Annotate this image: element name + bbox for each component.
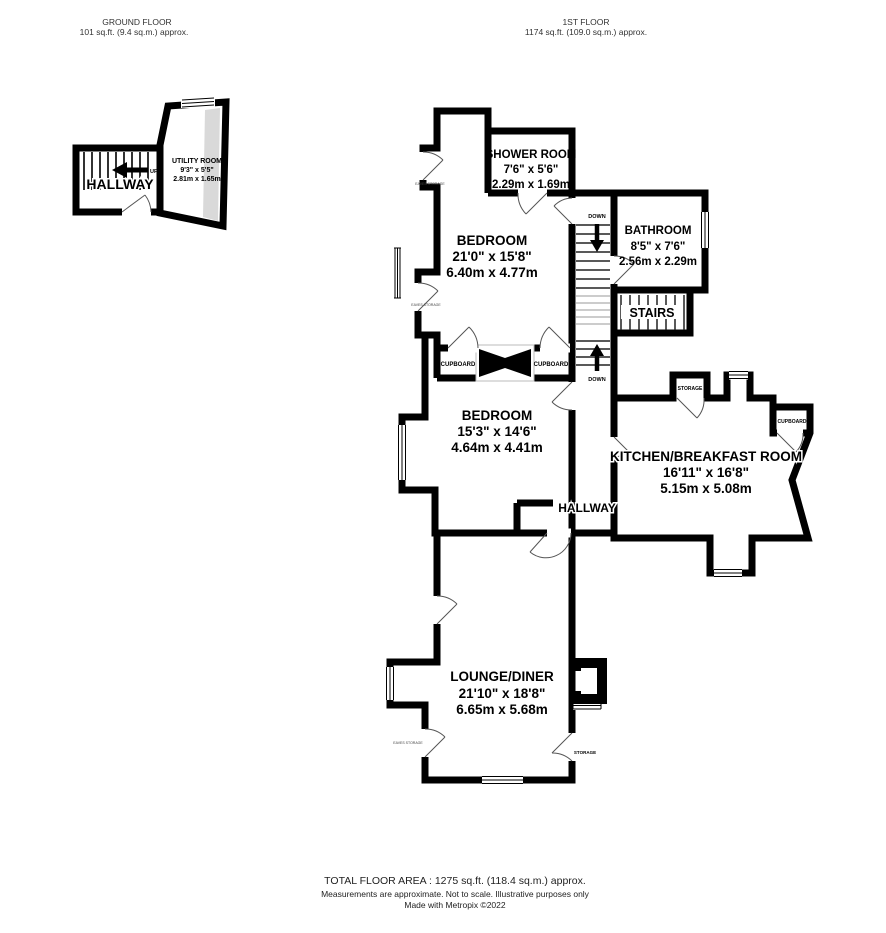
footer: TOTAL FLOOR AREA : 1275 sq.ft. (118.4 sq…: [321, 875, 590, 910]
kitchen-name: KITCHEN/BREAKFAST ROOM: [610, 449, 802, 464]
ground-floor-area: 101 sq.ft. (9.4 sq.m.) approx.: [80, 27, 189, 37]
kitchen-dims-m: 5.15m x 5.08m: [660, 481, 752, 496]
bedroom1-dims-m: 6.40m x 4.77m: [446, 265, 538, 280]
credit: Made with Metropix ©2022: [404, 900, 506, 910]
bedroom2-bay-window: [398, 425, 407, 480]
kitchen-bay-window: [714, 569, 742, 578]
kitchen-storage-label: STORAGE: [678, 386, 703, 392]
bedroom1-dims-ft: 21'0" x 15'8": [452, 249, 531, 264]
lounge-bay-window: [386, 667, 395, 700]
bathroom-dims-m: 2.56m x 2.29m: [619, 256, 697, 268]
down-label-bottom: DOWN: [588, 377, 605, 383]
bedroom2-label: BEDROOM 15'3" x 14'6" 4.64m x 4.41m: [451, 408, 543, 455]
kitchen-dims-ft: 16'11" x 16'8": [663, 465, 749, 480]
kitchen-cupboard-label: CUPBOARD: [778, 419, 807, 425]
total-floor-area: TOTAL FLOOR AREA : 1275 sq.ft. (118.4 sq…: [324, 875, 586, 887]
floor-plan: GROUND FLOOR 101 sq.ft. (9.4 sq.m.) appr…: [0, 0, 886, 933]
shower-dims-m: 2.29m x 1.69m: [492, 179, 570, 191]
bedroom1-name: BEDROOM: [457, 233, 528, 248]
utility-dims-m: 2.81m x 1.65m: [173, 176, 220, 183]
lounge-name: LOUNGE/DINER: [450, 669, 554, 684]
bedroom1-label: BEDROOM 21'0" x 15'8" 6.40m x 4.77m: [446, 233, 538, 280]
ff-hallway-label: HALLWAY: [558, 501, 616, 515]
gf-up-label: UP: [150, 169, 158, 175]
ground-floor-plan: UP HALLWAY UTILITY ROOM 9'3" x 5'5" 2.81…: [76, 97, 226, 226]
ground-floor-title: GROUND FLOOR: [102, 17, 171, 27]
stairs-label: STAIRS: [630, 306, 675, 320]
floorplan-page: GROUND FLOOR 101 sq.ft. (9.4 sq.m.) appr…: [0, 0, 886, 933]
bedroom2-dims-ft: 15'3" x 14'6": [457, 424, 536, 439]
shower-dims-ft: 7'6" x 5'6": [504, 164, 559, 176]
chimney-breast: [476, 345, 534, 381]
utility-dims-ft: 9'3" x 5'5": [180, 167, 213, 174]
lounge-dims-m: 6.65m x 5.68m: [456, 702, 548, 717]
shower-name: SHOWER ROOM: [486, 149, 577, 161]
first-floor-plan: DOWN DOWN STAIRS: [386, 111, 811, 785]
lounge-bottom-window: [482, 776, 523, 785]
bathroom-window: [701, 212, 710, 248]
eaves-storage-label-1: EAVES STORAGE: [415, 182, 445, 186]
eaves-storage-label-3: EAVES STORAGE: [393, 741, 423, 745]
lounge-dims-ft: 21'10" x 18'8": [459, 686, 546, 701]
lounge-storage-label: STORAGE: [574, 750, 596, 755]
bathroom-dims-ft: 8'5" x 7'6": [631, 241, 686, 253]
cupboard-right-label: CUPBOARD: [534, 362, 569, 368]
first-floor-title: 1ST FLOOR: [562, 17, 609, 27]
disclaimer: Measurements are approximate. Not to sca…: [321, 889, 590, 899]
floor-headers: GROUND FLOOR 101 sq.ft. (9.4 sq.m.) appr…: [80, 17, 647, 37]
bathroom-name: BATHROOM: [625, 225, 692, 237]
bedroom1-left-window: [394, 248, 401, 298]
utility-name: UTILITY ROOM: [172, 158, 222, 165]
first-floor-area: 1174 sq.ft. (109.0 sq.m.) approx.: [525, 27, 647, 37]
cupboard-left-label: CUPBOARD: [441, 362, 476, 368]
down-label-top: DOWN: [588, 214, 605, 220]
lounge-label: LOUNGE/DINER 21'10" x 18'8" 6.65m x 5.68…: [450, 669, 554, 717]
bedroom2-dims-m: 4.64m x 4.41m: [451, 440, 543, 455]
gf-hallway-label: HALLWAY: [86, 176, 154, 192]
bathroom-label: BATHROOM 8'5" x 7'6" 2.56m x 2.29m: [619, 225, 697, 268]
eaves-storage-label-2: EAVES STORAGE: [411, 303, 441, 307]
utility-window: [181, 97, 215, 108]
fireplace: [573, 658, 607, 704]
kitchen-top-window: [729, 371, 748, 380]
bedroom2-name: BEDROOM: [462, 408, 533, 423]
